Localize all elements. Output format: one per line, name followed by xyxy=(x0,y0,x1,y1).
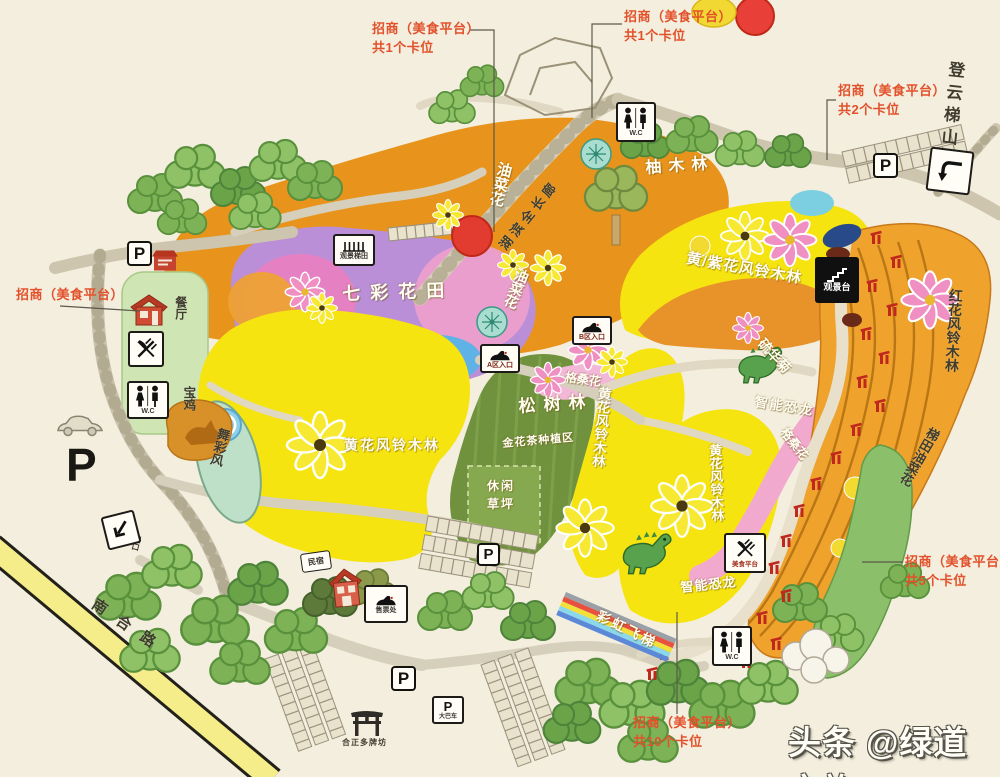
food-platform-box: 美食平台 xyxy=(724,533,766,573)
viewing-terrace-box: 观景梯田 xyxy=(333,234,375,266)
entrance-icon xyxy=(487,348,513,361)
ticket-icon xyxy=(373,593,399,606)
cosmos-flower-icon xyxy=(764,214,817,267)
stairs-icon xyxy=(825,267,849,283)
annotation-line1: 招商（美食平台） xyxy=(905,553,1000,572)
food-platform-label: 美食平台 xyxy=(732,561,758,568)
cyan-patch-shape xyxy=(790,190,834,216)
ticket-house-icon xyxy=(326,564,366,612)
viewing-terrace-label: 观景梯田 xyxy=(340,253,368,261)
parking-letter: P xyxy=(444,700,453,713)
daisy-flower-icon xyxy=(597,347,628,378)
watermark: 头条 @绿道文旅 xyxy=(788,716,1000,777)
bus-parking-label: 大巴车 xyxy=(439,714,457,721)
fork-knife-icon xyxy=(734,538,756,560)
annotation-top-mid: 招商（美食平台） 共1个卡位 xyxy=(624,8,732,46)
cosmos-flower-icon xyxy=(733,313,764,344)
park-map: 油菜花 湖滨全长廊 油菜花 七彩花田 柚木林 黄/紫花风铃木林 红花风铃木林 硫… xyxy=(0,0,1000,777)
annotation-left: 招商（美食平台） xyxy=(16,286,124,305)
viewing-deck-label: 观景台 xyxy=(823,283,850,293)
area-label-leisure-lawn: 休闲草坪 xyxy=(487,477,515,513)
area-label-yellow-trumpet-1: 黄花风铃木林 xyxy=(344,437,440,453)
area-label-yellow-trumpet-3: 黄花风铃木林 xyxy=(706,443,725,573)
archway-gate-icon xyxy=(348,708,386,738)
viewing-deck-box: 观景台 xyxy=(815,257,859,303)
parking-letter-large: P xyxy=(66,442,97,488)
parking-sign: P xyxy=(477,543,500,566)
parking-sign: P xyxy=(127,241,152,266)
parking-sign: P xyxy=(391,666,416,691)
annotation-line2: 共2个卡位 xyxy=(838,101,946,120)
annotation-line1: 招商（美食平台） xyxy=(624,8,732,27)
annotation-line1: 招商（美食平台） xyxy=(838,82,946,101)
annotation-right: 招商（美食平台） 共5个卡位 xyxy=(905,553,1000,591)
daisy-flower-icon xyxy=(651,475,713,537)
ticket-office-box: 售票处 xyxy=(364,585,408,623)
food-stall-icon xyxy=(150,248,180,275)
fork-knife-icon xyxy=(134,337,158,361)
uturn-arrow-icon xyxy=(933,154,966,187)
annotation-line2: 共1个卡位 xyxy=(372,39,480,58)
entrance-icon xyxy=(579,320,605,333)
ticket-office-label: 售票处 xyxy=(376,607,397,615)
annotation-line1: 招商（美食平台） xyxy=(633,714,741,733)
annotation-line2: 共10个卡位 xyxy=(633,733,741,752)
entry-b-box: B区入口 xyxy=(572,316,612,345)
exit-arrow-icon xyxy=(106,515,135,544)
daisy-flower-icon xyxy=(307,293,338,324)
label-restaurant: 餐厅 xyxy=(173,296,187,334)
wc-box-top: W.C xyxy=(616,102,656,142)
daisy-flower-icon xyxy=(530,250,565,285)
wc-persons-icon xyxy=(717,631,747,653)
area-label-rooster: 宝鸡 xyxy=(181,386,195,430)
wc-label: W.C xyxy=(629,130,642,138)
wc-label: W.C xyxy=(725,654,738,662)
parking-sign: P xyxy=(873,153,898,178)
cosmos-flower-icon xyxy=(530,362,565,397)
car-icon xyxy=(54,412,106,439)
label-archway: 合正多牌坊 xyxy=(342,738,387,747)
entry-a-label: A区入口 xyxy=(487,362,513,370)
annotation-line2: 共1个卡位 xyxy=(624,27,732,46)
restaurant-fork-box xyxy=(128,331,164,367)
uturn-arrow-box xyxy=(925,146,974,195)
wc-box-left: W.C xyxy=(127,381,169,419)
daisy-flower-icon xyxy=(433,200,464,231)
bus-parking-box: P 大巴车 xyxy=(432,696,464,724)
annotation-top-left: 招商（美食平台） 共1个卡位 xyxy=(372,20,480,58)
wc-label: W.C xyxy=(141,408,154,416)
annotation-top-right: 招商（美食平台） 共2个卡位 xyxy=(838,82,946,120)
restaurant-house-icon xyxy=(129,293,169,329)
dandelion-icon xyxy=(581,139,611,169)
daisy-flower-icon xyxy=(721,212,769,260)
wc-persons-icon xyxy=(621,107,651,129)
annotation-line2: 共5个卡位 xyxy=(905,572,1000,591)
annotation-line1: 招商（美食平台） xyxy=(372,20,480,39)
annotation-bottom: 招商（美食平台） 共10个卡位 xyxy=(633,714,741,752)
annotation-line1: 招商（美食平台） xyxy=(16,286,124,305)
homestay-label: 民宿 xyxy=(308,557,325,568)
entry-a-box: A区入口 xyxy=(480,344,520,373)
entry-b-label: B区入口 xyxy=(579,334,605,342)
boardwalk-icon xyxy=(341,240,367,252)
wc-persons-icon xyxy=(133,385,163,407)
area-label-colorful-flower-field: 七彩花田 xyxy=(342,280,455,305)
wc-box-bottom: W.C xyxy=(712,626,752,666)
